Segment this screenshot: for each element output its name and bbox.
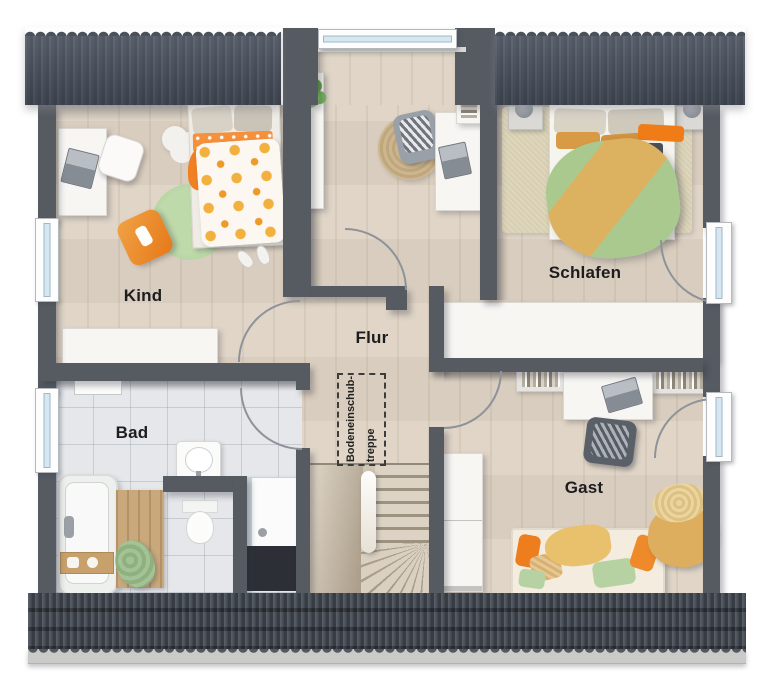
roof-top-left-fascia xyxy=(25,27,281,36)
gast-chair-cushion xyxy=(590,422,630,460)
room-label-gast: Gast xyxy=(565,478,604,498)
wall-alcove-schlafen xyxy=(480,105,497,300)
schlafen-pillow-orange xyxy=(638,124,685,142)
bathtub xyxy=(58,474,118,595)
attic-stairs-label-line1: Bodeneinschub- xyxy=(342,376,362,462)
attic-stairs-label-line2: treppe xyxy=(362,376,382,462)
wall-stairs-east-2 xyxy=(429,427,444,593)
wall-kind-bad xyxy=(38,363,310,381)
toilet-bowl xyxy=(186,511,214,544)
gast-daybed xyxy=(511,528,665,596)
roof-bottom xyxy=(28,593,746,650)
washbasin-bowl xyxy=(185,447,213,473)
stair-handrail xyxy=(361,471,376,553)
schlafen-pillow-beige-left xyxy=(554,108,607,135)
kind-pillow-right xyxy=(234,105,272,132)
wall-right-2 xyxy=(703,298,720,397)
attic-stairs-label: Bodeneinschub- treppe xyxy=(342,376,382,462)
alcove-chair-cushion xyxy=(398,114,434,153)
floorplan: Bodeneinschub- treppe Kind Schlafen xyxy=(0,0,775,693)
window-gast xyxy=(706,392,732,462)
wall-alcove-left-top xyxy=(283,28,318,105)
wall-shower-left xyxy=(233,476,247,593)
window-schlafen xyxy=(706,222,732,304)
wall-flur-north-corner xyxy=(386,297,407,310)
roof-top-right-fascia xyxy=(495,27,745,36)
window-kind xyxy=(35,218,59,302)
kind-pillow-left xyxy=(191,105,233,135)
room-label-bad: Bad xyxy=(116,423,149,443)
room-label-kind: Kind xyxy=(124,286,163,306)
gast-shelf-left-books xyxy=(522,371,560,387)
caddy-soap xyxy=(67,557,79,568)
daybed-pillow-green-small xyxy=(518,568,546,589)
bathtub-caddy xyxy=(60,552,114,574)
stair-flight-left xyxy=(305,465,363,595)
gast-office-chair xyxy=(582,416,637,468)
room-label-schlafen: Schlafen xyxy=(549,263,621,283)
wall-sink-stub xyxy=(163,476,233,492)
wall-right-3 xyxy=(703,456,720,593)
shower-glass xyxy=(248,478,252,546)
wall-left-1 xyxy=(38,105,56,221)
shower-drain xyxy=(258,528,267,537)
wall-right-1 xyxy=(703,105,720,228)
roof-bottom-gutter xyxy=(28,649,746,664)
knee-wall-void xyxy=(247,546,302,591)
roof-top-right xyxy=(495,27,745,105)
kind-duvet xyxy=(195,138,286,248)
bathtub-faucet xyxy=(64,516,74,538)
window-gast-glass xyxy=(716,397,723,457)
kind-bed xyxy=(188,101,283,246)
window-alcove-glass xyxy=(323,36,452,43)
roof-top-left xyxy=(25,27,281,105)
wall-alcove-right-top xyxy=(455,28,497,105)
window-kind-glass xyxy=(44,223,51,297)
washbasin xyxy=(176,441,221,480)
toilet xyxy=(182,500,216,545)
cloud-rug xyxy=(162,126,188,152)
attic-stairs-outline: Bodeneinschub- treppe xyxy=(337,373,386,466)
window-bad-glass xyxy=(44,393,51,468)
room-label-flur: Flur xyxy=(356,328,389,348)
wall-kind-flur xyxy=(283,105,311,297)
wall-left-3 xyxy=(38,468,56,593)
schlafen-sideboard xyxy=(442,302,718,362)
gast-wardrobe xyxy=(443,453,483,592)
window-schlafen-glass xyxy=(716,227,723,299)
window-alcove xyxy=(318,29,457,49)
staircase xyxy=(305,463,429,595)
window-bad xyxy=(35,388,59,473)
caddy-cup xyxy=(87,557,98,568)
wall-bad-east-2 xyxy=(296,448,310,593)
gast-shelf-right-books xyxy=(656,371,708,389)
towel-rail xyxy=(74,380,122,395)
stair-treads-right xyxy=(375,465,429,551)
wall-gast-north xyxy=(429,358,703,372)
